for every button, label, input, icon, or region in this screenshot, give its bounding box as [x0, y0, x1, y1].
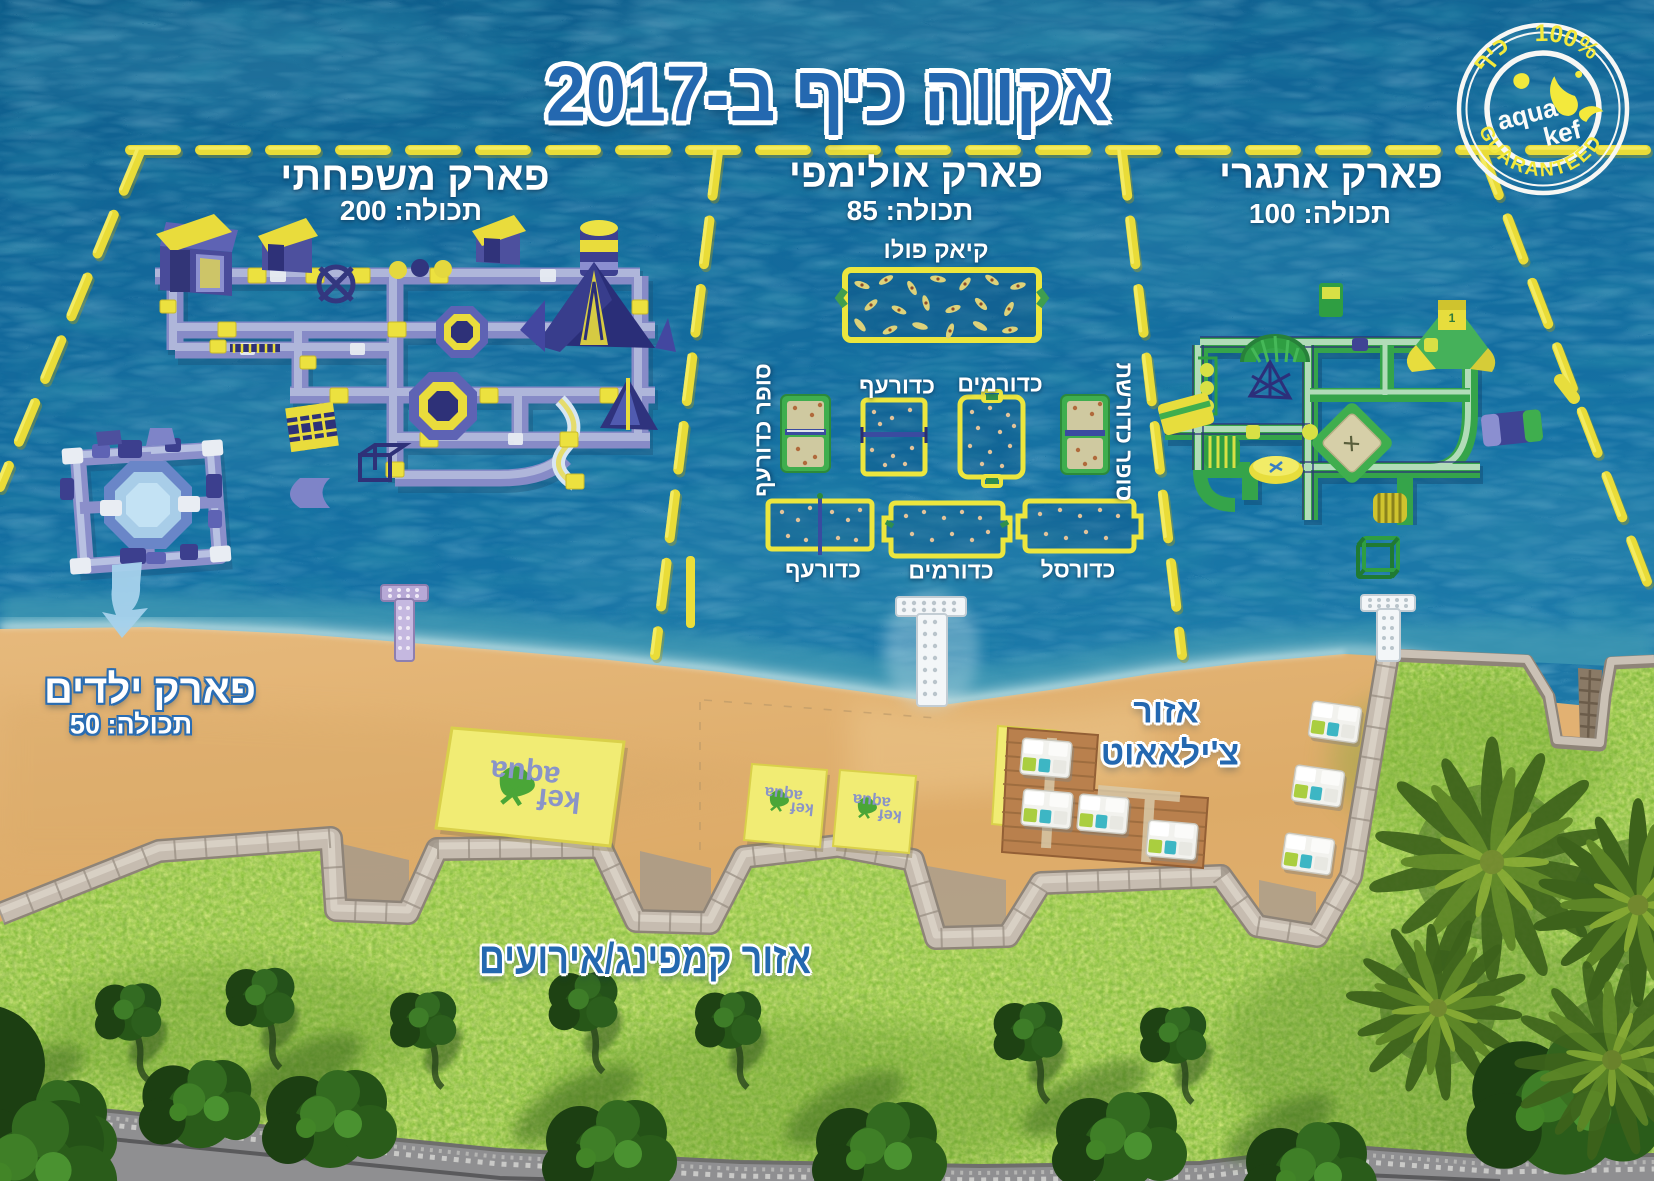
svg-text:1: 1	[1449, 311, 1456, 325]
